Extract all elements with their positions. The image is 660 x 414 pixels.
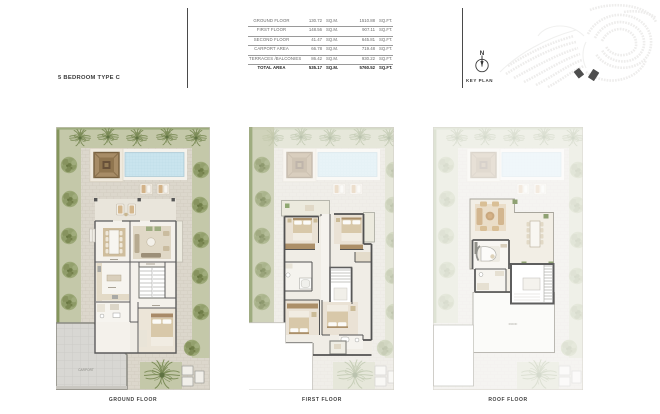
svg-text:CARPORT: CARPORT (78, 368, 94, 372)
svg-text:ROOF: ROOF (509, 322, 518, 326)
